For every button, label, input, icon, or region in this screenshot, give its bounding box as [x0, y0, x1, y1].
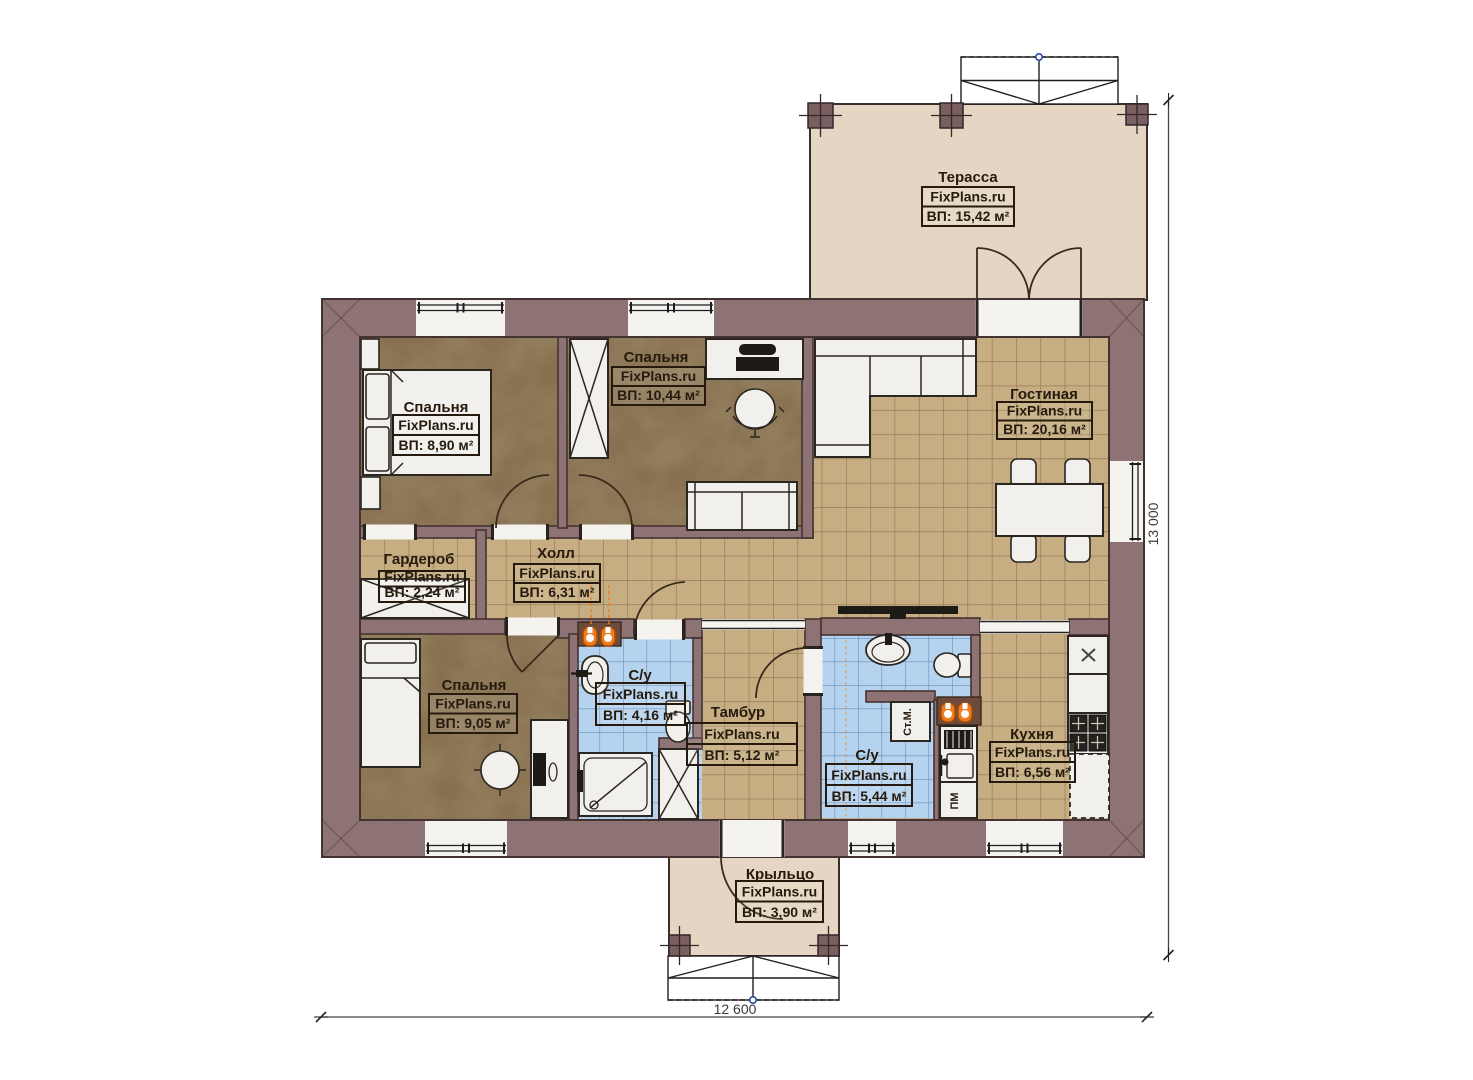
svg-text:ВП: 5,12 м²: ВП: 5,12 м² [705, 747, 780, 763]
svg-text:ВП: 9,05 м²: ВП: 9,05 м² [436, 715, 511, 731]
svg-text:Ст.М.: Ст.М. [902, 708, 914, 736]
svg-text:FixPlans.ru: FixPlans.ru [831, 767, 906, 783]
svg-text:ВП: 3,90 м²: ВП: 3,90 м² [742, 904, 817, 920]
svg-text:FixPlans.ru: FixPlans.ru [398, 417, 473, 433]
svg-text:С/у: С/у [628, 667, 652, 684]
svg-text:FixPlans.ru: FixPlans.ru [621, 368, 696, 384]
svg-text:FixPlans.ru: FixPlans.ru [603, 686, 678, 702]
svg-text:ВП: 10,44 м²: ВП: 10,44 м² [617, 387, 700, 403]
svg-text:ВП: 4,16 м²: ВП: 4,16 м² [603, 707, 678, 723]
svg-text:FixPlans.ru: FixPlans.ru [995, 744, 1070, 760]
svg-text:FixPlans.ru: FixPlans.ru [1007, 403, 1082, 419]
svg-text:ВП: 6,56 м²: ВП: 6,56 м² [995, 764, 1070, 780]
svg-text:Терасса: Терасса [938, 169, 998, 186]
svg-text:ВП: 2,24 м²: ВП: 2,24 м² [385, 584, 460, 600]
svg-text:С/у: С/у [855, 747, 879, 764]
svg-text:Спальня: Спальня [442, 677, 507, 694]
svg-text:ВП: 20,16 м²: ВП: 20,16 м² [1003, 421, 1086, 437]
svg-text:ВП: 8,90 м²: ВП: 8,90 м² [399, 437, 474, 453]
svg-text:13 000: 13 000 [1145, 502, 1161, 545]
svg-text:Холл: Холл [537, 545, 575, 562]
svg-text:FixPlans.ru: FixPlans.ru [930, 189, 1005, 205]
svg-text:Гардероб: Гардероб [384, 551, 455, 568]
svg-text:FixPlans.ru: FixPlans.ru [742, 884, 817, 900]
svg-text:FixPlans.ru: FixPlans.ru [384, 569, 459, 585]
svg-text:ПМ: ПМ [949, 792, 961, 809]
svg-text:FixPlans.ru: FixPlans.ru [435, 696, 510, 712]
svg-text:FixPlans.ru: FixPlans.ru [519, 565, 594, 581]
svg-text:ВП: 15,42 м²: ВП: 15,42 м² [927, 208, 1010, 224]
svg-text:FixPlans.ru: FixPlans.ru [704, 726, 779, 742]
svg-text:Спальня: Спальня [624, 349, 689, 366]
svg-text:ВП: 6,31 м²: ВП: 6,31 м² [520, 584, 595, 600]
svg-text:ВП: 5,44 м²: ВП: 5,44 м² [832, 788, 907, 804]
svg-text:12 600: 12 600 [714, 1001, 757, 1017]
svg-text:Тамбур: Тамбур [711, 704, 765, 721]
svg-text:Гостиная: Гостиная [1010, 386, 1078, 403]
svg-text:Кухня: Кухня [1010, 726, 1054, 743]
svg-text:Спальня: Спальня [404, 399, 469, 416]
